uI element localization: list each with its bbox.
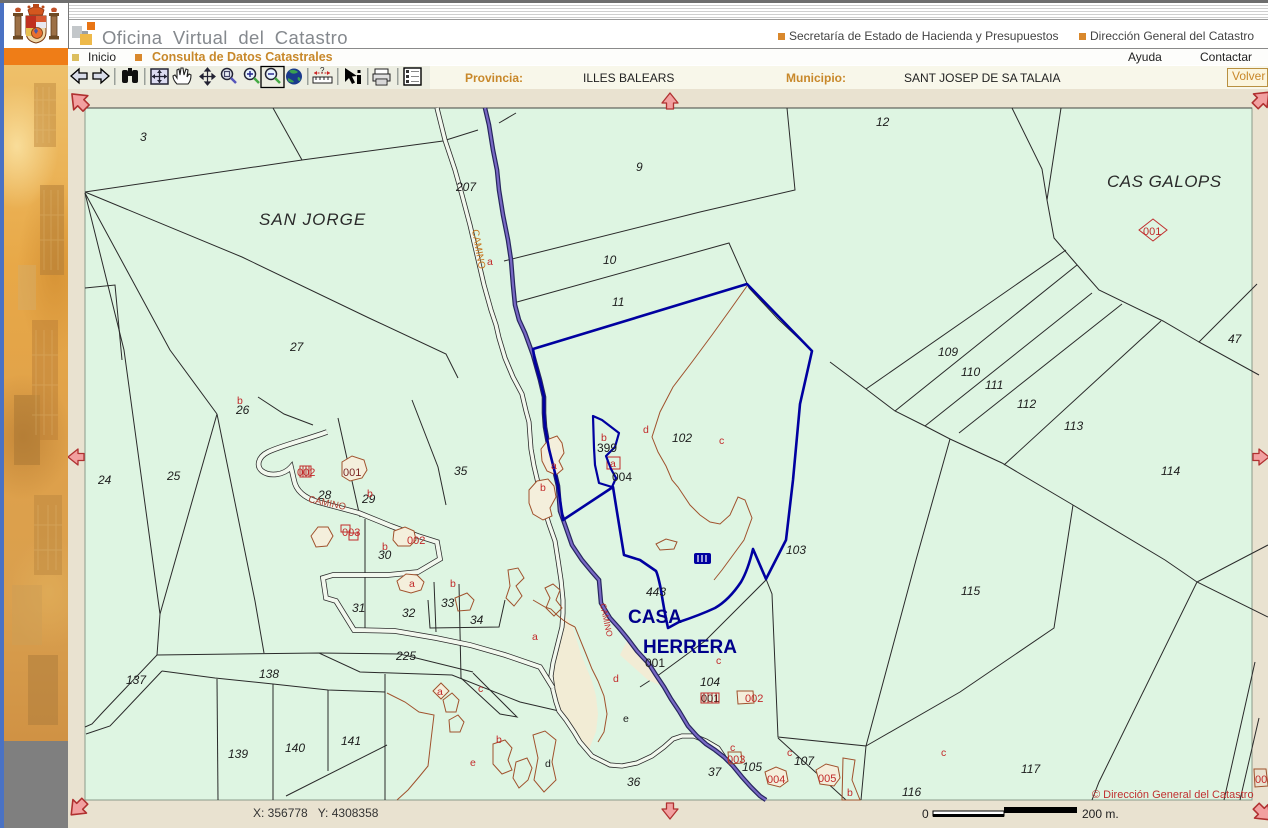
svg-text:HERRERA: HERRERA — [643, 637, 737, 658]
svg-text:107: 107 — [794, 754, 815, 768]
svg-text:c: c — [478, 683, 483, 695]
svg-text:001: 001 — [1143, 226, 1161, 238]
svg-text:25: 25 — [166, 469, 181, 483]
svg-text:140: 140 — [285, 741, 305, 755]
svg-text:c: c — [787, 747, 792, 759]
svg-text:116: 116 — [902, 785, 921, 799]
svg-text:a: a — [437, 686, 443, 698]
svg-text:b: b — [540, 482, 546, 494]
svg-text:b: b — [496, 734, 502, 746]
svg-text:b: b — [450, 578, 456, 590]
svg-text:001: 001 — [701, 693, 719, 705]
svg-text:225: 225 — [395, 649, 416, 663]
svg-text:139: 139 — [228, 747, 248, 761]
svg-text:a: a — [551, 460, 557, 472]
svg-text:103: 103 — [786, 543, 806, 557]
svg-text:a: a — [409, 578, 415, 590]
svg-text:33: 33 — [441, 596, 455, 610]
svg-text:37: 37 — [708, 765, 723, 779]
svg-text:002: 002 — [745, 693, 763, 705]
svg-text:c: c — [716, 655, 721, 667]
svg-text:b: b — [367, 488, 373, 500]
svg-text:32: 32 — [402, 606, 416, 620]
svg-text:112: 112 — [1017, 397, 1036, 411]
svg-text:12: 12 — [876, 115, 890, 129]
svg-text:b: b — [847, 787, 853, 799]
svg-text:a: a — [487, 256, 493, 268]
svg-text:a: a — [610, 458, 616, 470]
svg-text:d: d — [643, 424, 649, 436]
svg-text:004: 004 — [612, 470, 632, 484]
svg-text:a: a — [532, 631, 538, 643]
svg-text:0: 0 — [922, 807, 929, 821]
svg-text:e: e — [623, 713, 629, 725]
svg-text:c: c — [730, 742, 735, 754]
svg-text:CAS GALOPS: CAS GALOPS — [1107, 172, 1222, 191]
svg-text:36: 36 — [627, 775, 641, 789]
svg-text:004: 004 — [767, 774, 785, 786]
svg-text:c: c — [941, 747, 946, 759]
svg-text:e: e — [470, 757, 476, 769]
svg-text:141: 141 — [341, 734, 361, 748]
svg-text:9: 9 — [636, 160, 643, 174]
svg-text:SAN JORGE: SAN JORGE — [259, 210, 366, 229]
svg-text:002: 002 — [407, 535, 425, 547]
svg-text:109: 109 — [938, 345, 958, 359]
svg-text:114: 114 — [1161, 464, 1180, 478]
svg-text:002: 002 — [297, 467, 315, 479]
svg-text:24: 24 — [97, 473, 112, 487]
svg-text:3: 3 — [140, 130, 147, 144]
svg-text:d: d — [545, 758, 551, 770]
svg-text:115: 115 — [961, 584, 980, 598]
svg-text:138: 138 — [259, 667, 279, 681]
svg-text:47: 47 — [1228, 332, 1243, 346]
svg-text:© Dirección General del Catast: © Dirección General del Catastro — [1092, 789, 1254, 801]
svg-text:200 m.: 200 m. — [1082, 807, 1119, 821]
svg-text:117: 117 — [1021, 762, 1041, 776]
svg-text:110: 110 — [961, 365, 980, 379]
svg-text:10: 10 — [603, 253, 617, 267]
svg-text:b: b — [601, 432, 607, 444]
svg-text:d: d — [613, 673, 619, 685]
svg-text:006: 006 — [1255, 774, 1268, 786]
svg-text:27: 27 — [289, 340, 305, 354]
svg-text:113: 113 — [1064, 419, 1083, 433]
svg-text:443: 443 — [646, 585, 666, 599]
svg-text:b: b — [382, 541, 388, 553]
svg-text:005: 005 — [818, 773, 836, 785]
svg-text:11: 11 — [612, 295, 624, 309]
svg-text:137: 137 — [126, 673, 147, 687]
svg-text:34: 34 — [470, 613, 484, 627]
svg-text:104: 104 — [700, 675, 720, 689]
svg-text:CASA: CASA — [628, 607, 682, 628]
svg-text:X: 356778 Y: 4308358: X: 356778 Y: 4308358 — [253, 806, 379, 820]
svg-text:111: 111 — [985, 378, 1003, 392]
svg-text:003: 003 — [342, 527, 360, 539]
svg-text:b: b — [237, 395, 243, 407]
svg-text:31: 31 — [352, 601, 365, 615]
svg-text:35: 35 — [454, 464, 468, 478]
svg-text:?: ? — [320, 66, 325, 75]
svg-text:207: 207 — [455, 180, 477, 194]
svg-text:001: 001 — [645, 656, 665, 670]
svg-text:003: 003 — [727, 754, 745, 766]
svg-text:001: 001 — [343, 467, 361, 479]
svg-text:102: 102 — [672, 431, 692, 445]
svg-text:c: c — [719, 435, 724, 447]
